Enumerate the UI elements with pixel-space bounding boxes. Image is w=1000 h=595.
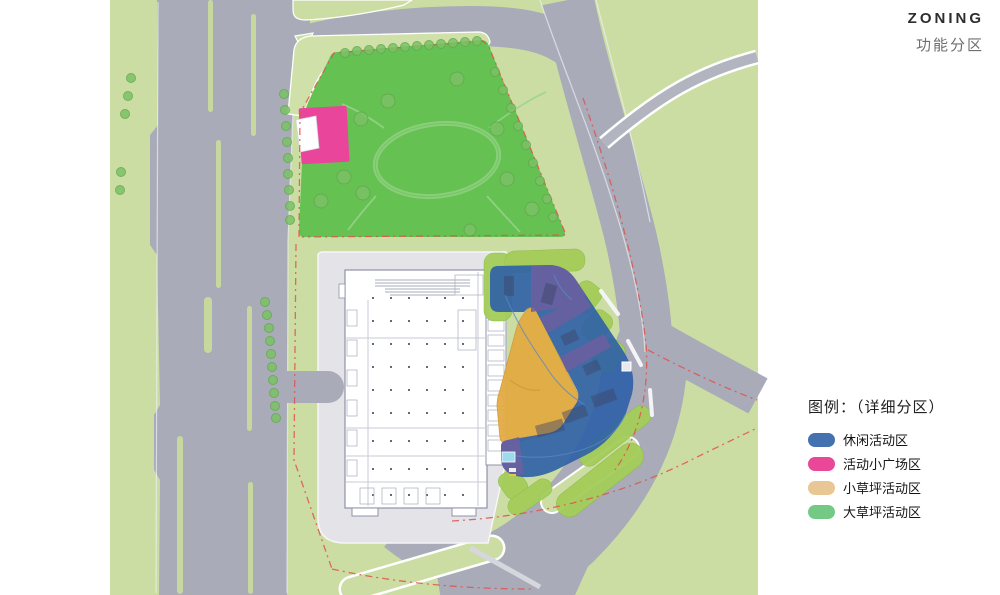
legend-label: 大草坪活动区 (843, 502, 921, 521)
legend-label: 小草坪活动区 (843, 478, 921, 497)
legend-label: 休闲活动区 (843, 430, 908, 449)
legend-swatch-blue (808, 433, 835, 447)
legend-item: 活动小广场区 (808, 454, 945, 473)
legend-swatch-tan (808, 481, 835, 495)
page-subtitle: 功能分区 (908, 34, 984, 55)
legend-item: 小草坪活动区 (808, 478, 945, 497)
legend-swatch-pink (808, 457, 835, 471)
building-footprint (339, 270, 506, 516)
title-block: ZONING 功能分区 (908, 10, 984, 55)
zoning-plan-page: ZONING 功能分区 图例：（详细分区） 休闲活动区 活动小广场区 小草坪活动… (0, 0, 1000, 595)
legend-swatch-green (808, 505, 835, 519)
legend-item: 休闲活动区 (808, 430, 945, 449)
legend-label: 活动小广场区 (843, 454, 921, 473)
plaza-activity-zone-pink (296, 106, 349, 164)
legend-item: 大草坪活动区 (808, 502, 945, 521)
page-title: ZONING (908, 10, 984, 27)
pool (502, 452, 515, 462)
legend: 图例：（详细分区） 休闲活动区 活动小广场区 小草坪活动区 大草坪活动区 (808, 396, 945, 526)
legend-title: 图例：（详细分区） (808, 396, 945, 417)
